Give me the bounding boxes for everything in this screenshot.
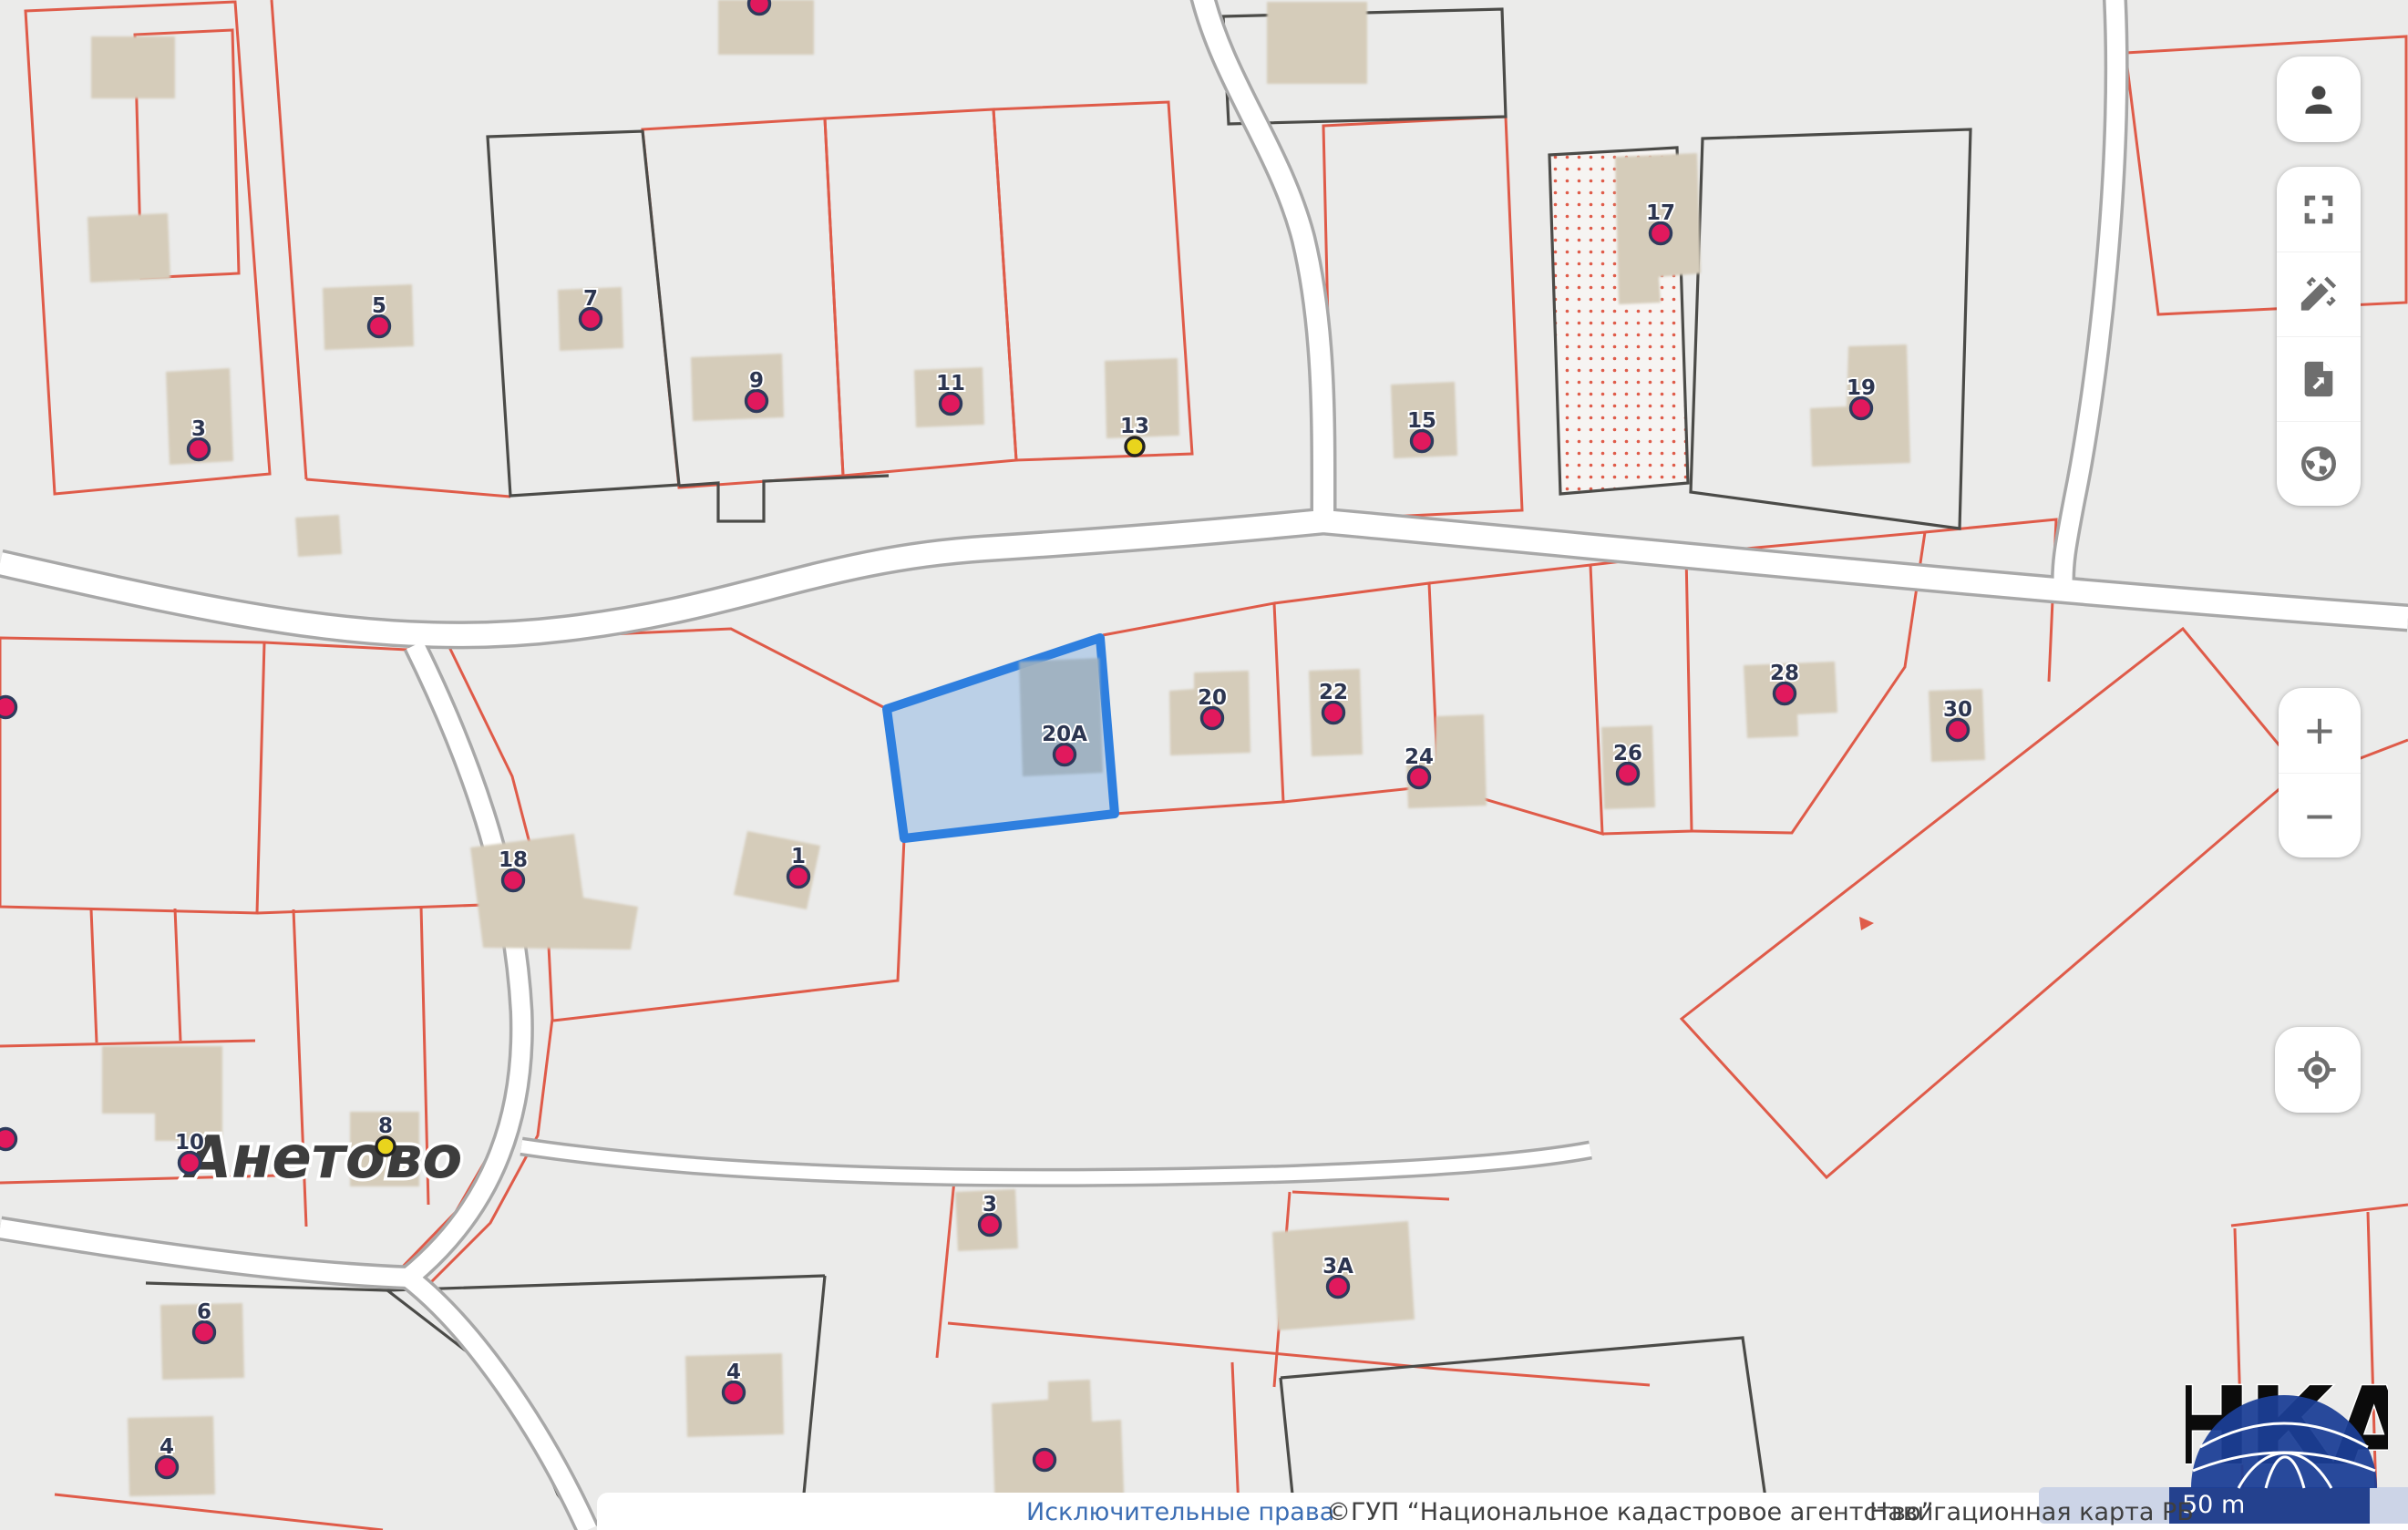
house-marker[interactable]: 20 xyxy=(1198,686,1227,729)
user-icon xyxy=(2298,78,2340,120)
house-marker[interactable]: 30 xyxy=(1943,698,1972,741)
svg-text:Анетово: Анетово xyxy=(182,1124,463,1192)
tools-card xyxy=(2277,167,2361,506)
house-marker[interactable]: 15 xyxy=(1407,409,1436,452)
house-marker[interactable]: 26 xyxy=(1613,742,1642,785)
house-marker[interactable]: 18 xyxy=(499,848,528,891)
svg-text:26: 26 xyxy=(1613,742,1642,765)
svg-text:4: 4 xyxy=(726,1361,741,1384)
user-card xyxy=(2277,56,2361,142)
svg-text:3А: 3А xyxy=(1322,1255,1353,1278)
svg-text:3: 3 xyxy=(191,417,206,441)
house-marker[interactable]: 3А xyxy=(1322,1255,1353,1298)
house-marker[interactable] xyxy=(749,0,770,15)
svg-text:9: 9 xyxy=(749,369,764,393)
zoom-in-button[interactable]: + xyxy=(2279,688,2361,773)
svg-text:3: 3 xyxy=(983,1193,997,1217)
svg-text:20А: 20А xyxy=(1042,723,1087,746)
measure-tools-button[interactable] xyxy=(2277,252,2361,336)
house-marker[interactable]: 11 xyxy=(936,372,965,415)
map-application: Анетово3579111315171920А2022242628301811… xyxy=(0,0,2408,1530)
house-marker[interactable]: 10 xyxy=(175,1131,204,1174)
svg-text:8: 8 xyxy=(378,1114,393,1138)
user-profile-button[interactable] xyxy=(2277,56,2361,141)
base-layers-button[interactable] xyxy=(2277,421,2361,506)
svg-text:10: 10 xyxy=(175,1131,204,1155)
measure-tools-icon xyxy=(2298,273,2340,315)
svg-text:4: 4 xyxy=(160,1435,174,1459)
map-name-text: Навигационная карта РБ xyxy=(1869,1498,2194,1526)
svg-text:28: 28 xyxy=(1770,662,1799,685)
house-marker[interactable]: 19 xyxy=(1847,376,1876,419)
svg-text:6: 6 xyxy=(197,1300,211,1324)
svg-text:24: 24 xyxy=(1405,745,1434,769)
svg-text:15: 15 xyxy=(1407,409,1436,433)
export-document-icon xyxy=(2298,358,2340,400)
scale-bar-segment xyxy=(2370,1487,2408,1524)
zoom-card: + − xyxy=(2279,688,2361,857)
svg-text:17: 17 xyxy=(1646,201,1675,225)
svg-text:13: 13 xyxy=(1120,415,1149,438)
house-marker[interactable]: 17 xyxy=(1646,201,1675,244)
svg-text:1: 1 xyxy=(791,845,806,868)
svg-text:19: 19 xyxy=(1847,376,1876,400)
house-marker[interactable]: 22 xyxy=(1319,681,1348,724)
house-marker[interactable]: 8 xyxy=(376,1114,395,1155)
map-canvas[interactable]: Анетово3579111315171920А2022242628301811… xyxy=(0,0,2408,1530)
locate-card xyxy=(2275,1027,2361,1113)
house-marker[interactable] xyxy=(1034,1450,1055,1471)
svg-text:22: 22 xyxy=(1319,681,1348,704)
my-location-icon xyxy=(2296,1049,2338,1091)
svg-text:5: 5 xyxy=(372,294,386,318)
svg-text:7: 7 xyxy=(583,287,598,311)
exclusive-rights-link[interactable]: Исключительные права xyxy=(1026,1498,1334,1526)
zoom-out-button[interactable]: − xyxy=(2279,773,2361,857)
my-location-button[interactable] xyxy=(2275,1027,2359,1112)
house-marker[interactable] xyxy=(0,1129,16,1150)
nka-logo: НКА xyxy=(2186,1369,2388,1490)
svg-text:30: 30 xyxy=(1943,698,1972,722)
house-marker[interactable]: 28 xyxy=(1770,662,1799,704)
svg-text:18: 18 xyxy=(499,848,528,872)
fullscreen-icon xyxy=(2298,189,2340,231)
scale-bar-label: 50 m xyxy=(2169,1487,2370,1524)
house-marker[interactable]: 24 xyxy=(1405,745,1434,788)
house-marker[interactable] xyxy=(0,697,16,718)
globe-icon xyxy=(2298,443,2340,485)
svg-text:11: 11 xyxy=(936,372,965,395)
house-marker[interactable]: 13 xyxy=(1120,415,1149,456)
fullscreen-button[interactable] xyxy=(2277,167,2361,252)
svg-text:20: 20 xyxy=(1198,686,1227,710)
export-document-button[interactable] xyxy=(2277,336,2361,421)
attribution-text: ©ГУП “Национальное кадастровое агентство… xyxy=(1326,1498,1933,1526)
